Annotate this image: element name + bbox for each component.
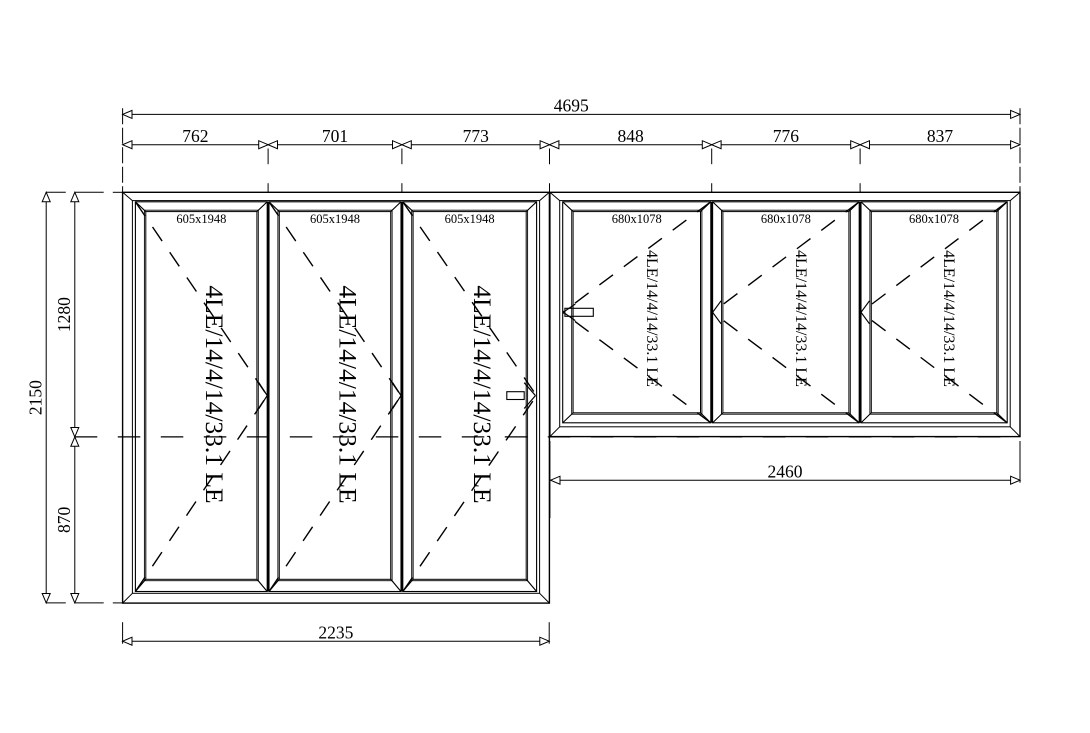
svg-text:2150: 2150 bbox=[25, 380, 45, 415]
svg-text:4LE/14/4/14/33.1 LE: 4LE/14/4/14/33.1 LE bbox=[334, 285, 363, 503]
svg-text:762: 762 bbox=[182, 126, 208, 146]
svg-text:776: 776 bbox=[773, 126, 800, 146]
svg-text:848: 848 bbox=[617, 126, 644, 146]
svg-text:4LE/14/4/14/33.1 LE: 4LE/14/4/14/33.1 LE bbox=[940, 250, 957, 387]
svg-text:4LE/14/4/14/33.1 LE: 4LE/14/4/14/33.1 LE bbox=[200, 285, 229, 503]
svg-text:680x1078: 680x1078 bbox=[761, 212, 811, 226]
svg-text:4LE/14/4/14/33.1 LE: 4LE/14/4/14/33.1 LE bbox=[468, 285, 497, 503]
svg-text:4695: 4695 bbox=[554, 96, 589, 116]
svg-text:605x1948: 605x1948 bbox=[176, 212, 226, 226]
svg-text:4LE/14/4/14/33.1 LE: 4LE/14/4/14/33.1 LE bbox=[643, 250, 660, 387]
svg-text:680x1078: 680x1078 bbox=[909, 212, 959, 226]
svg-text:1280: 1280 bbox=[54, 297, 74, 332]
svg-text:870: 870 bbox=[54, 507, 74, 534]
svg-text:701: 701 bbox=[322, 126, 348, 146]
svg-text:2460: 2460 bbox=[768, 461, 803, 481]
svg-text:605x1948: 605x1948 bbox=[445, 212, 495, 226]
svg-text:4LE/14/4/14/33.1 LE: 4LE/14/4/14/33.1 LE bbox=[792, 250, 809, 387]
svg-text:680x1078: 680x1078 bbox=[612, 212, 662, 226]
svg-text:773: 773 bbox=[463, 126, 490, 146]
svg-text:605x1948: 605x1948 bbox=[310, 212, 360, 226]
svg-text:2235: 2235 bbox=[318, 622, 353, 642]
svg-text:837: 837 bbox=[927, 126, 954, 146]
